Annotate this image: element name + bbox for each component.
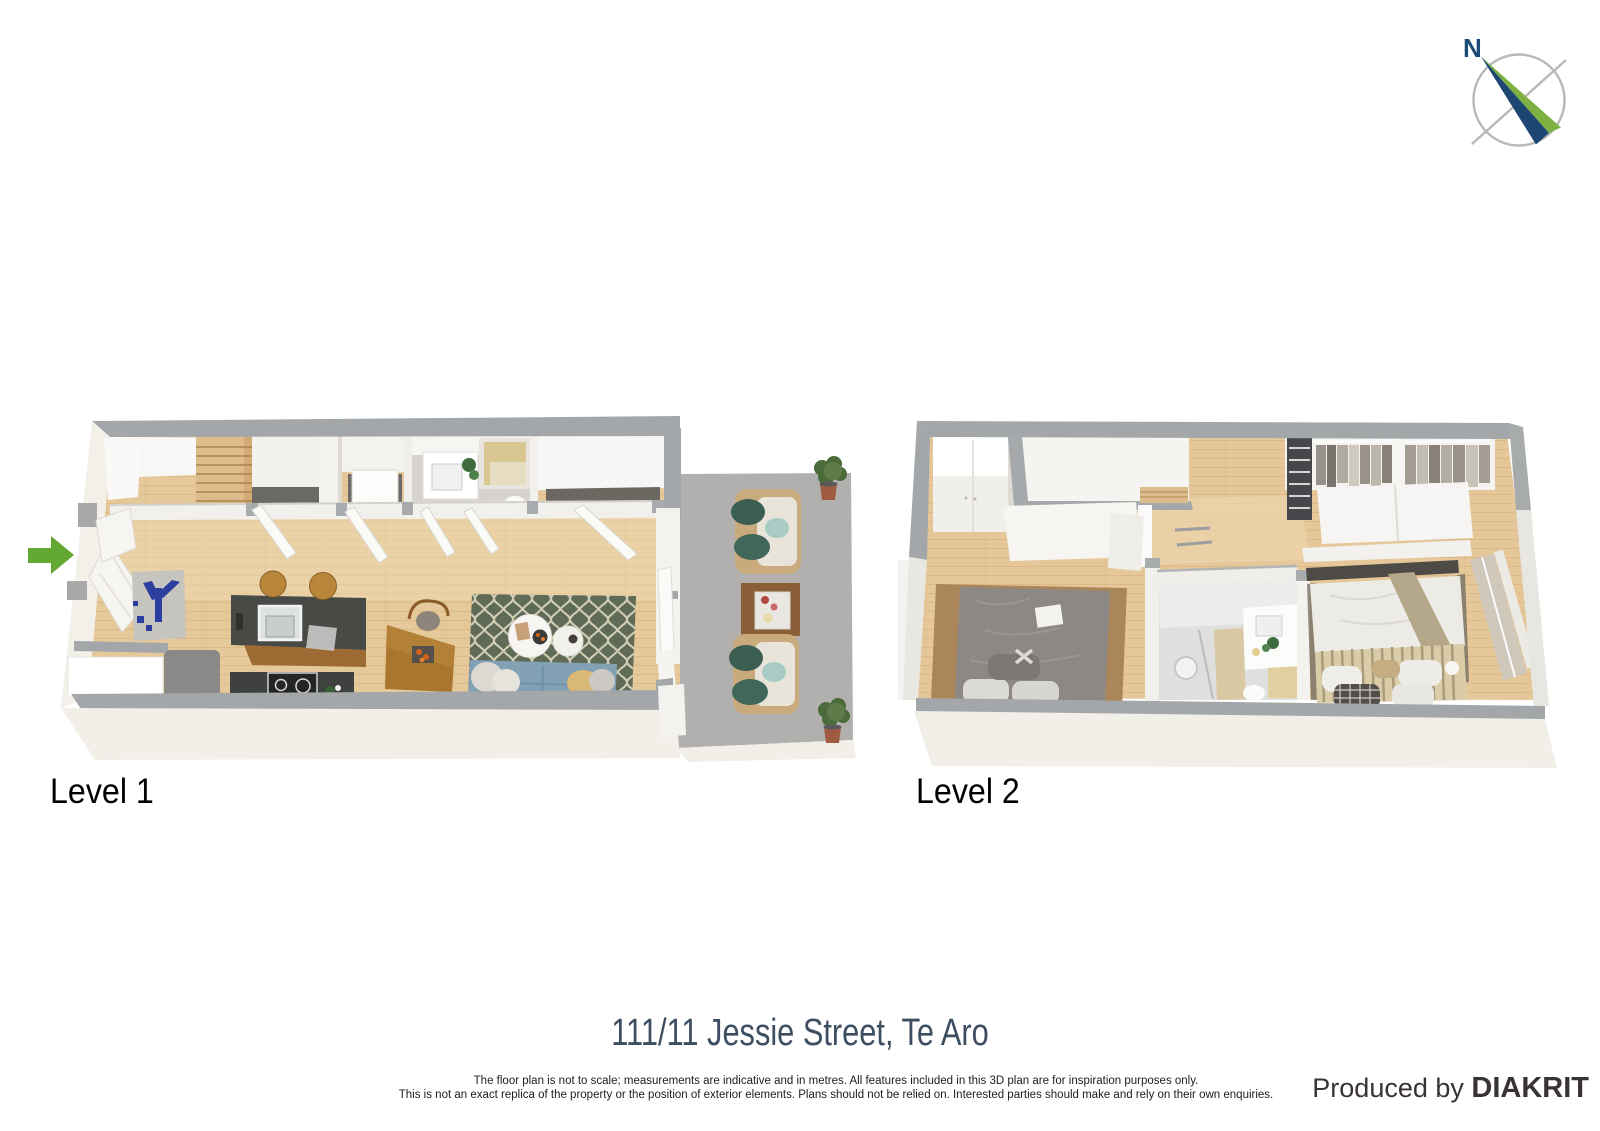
svg-text:N: N bbox=[1463, 33, 1482, 63]
